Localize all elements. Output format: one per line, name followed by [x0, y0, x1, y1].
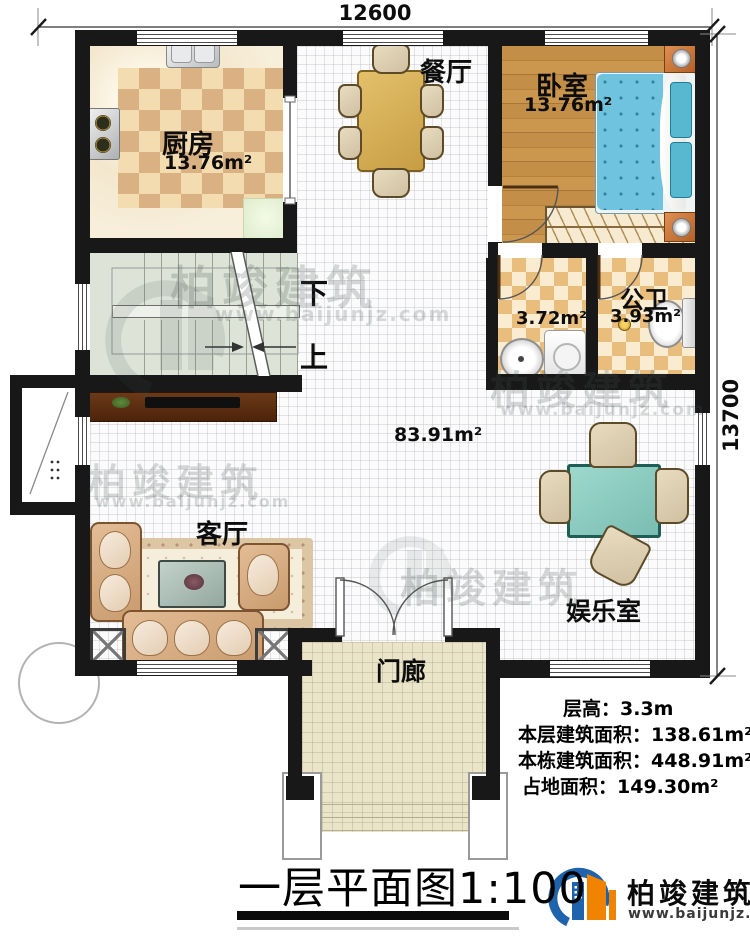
washer-drum: [553, 343, 581, 371]
nightstand-bottom: [664, 212, 698, 242]
dimension-right: 13700: [719, 352, 743, 452]
wall-porch-left: [288, 642, 302, 792]
game-chair-left: [539, 470, 571, 524]
brand-url: www.baijunjz.com: [628, 906, 750, 922]
stove: [88, 108, 120, 160]
stat-floor-height: 层高：3.3m: [563, 694, 673, 721]
window-bedroom-top: [545, 31, 648, 45]
entertainment-label: 娱乐室: [566, 592, 641, 628]
lamp-top: [672, 49, 691, 68]
living-label: 客厅: [196, 514, 248, 551]
window-entertainment-bottom: [550, 661, 650, 677]
stat-footprint-area: 占地面积：149.30m²: [522, 772, 718, 799]
wall-bath-left: [486, 258, 498, 390]
window-kitchen-top: [137, 31, 237, 45]
bay-wall-top: [10, 375, 90, 388]
game-chair-top: [589, 422, 637, 468]
kitchen-area: 13.76m²: [164, 152, 252, 174]
bedroom-door-gap: [488, 186, 502, 242]
bed-pillow-1: [670, 82, 692, 138]
porch-steps: [302, 792, 486, 832]
hall-area: 83.91m²: [394, 424, 482, 446]
wall-porch-right: [486, 642, 500, 792]
wall-porch-top-left: [288, 628, 342, 642]
stairs-up-label: 上: [300, 336, 328, 376]
dining-chair-left-2: [338, 126, 362, 160]
wall-bath-bottom: [486, 374, 710, 390]
window-bay-left: [75, 417, 90, 465]
basin-drain: [518, 356, 524, 362]
stat-building-area-label: 本栋建筑面积：: [518, 750, 651, 772]
washing-machine: [544, 330, 586, 378]
dining-chair-bottom: [372, 168, 410, 198]
stat-building-area-value: 448.91m²: [651, 750, 750, 772]
game-chair-right: [655, 468, 689, 524]
porch-label: 门廊: [376, 652, 426, 688]
window-right-mid: [695, 413, 710, 465]
sofa-bottom-cushion-3: [216, 620, 252, 656]
bath-small-area: 3.72m²: [516, 308, 587, 329]
stair-treads-upper: [128, 253, 298, 308]
dining-chair-right-1: [420, 84, 444, 118]
window-living-bottom: [137, 661, 237, 675]
stat-floor-height-value: 3.3m: [620, 698, 673, 720]
window-dining-top: [343, 31, 443, 45]
stat-floor-area: 本层建筑面积：138.61m²: [518, 720, 750, 747]
stat-building-area: 本栋建筑面积：448.91m²: [518, 746, 750, 773]
page-title: 一层平面图1:100: [238, 854, 587, 916]
bed-pillow-2: [670, 142, 692, 198]
dining-table: [357, 70, 425, 172]
sofa-bottom: [122, 610, 264, 666]
tv: [145, 397, 240, 408]
stair-treads-lower: [128, 320, 298, 375]
dining-label: 餐厅: [420, 52, 472, 89]
armchair-right: [238, 543, 290, 611]
window-stairs-left: [75, 284, 90, 350]
dimension-top: 12600: [305, 1, 445, 25]
planter-left: [90, 628, 126, 664]
stat-floor-area-label: 本层建筑面积：: [518, 724, 651, 746]
wall-right: [695, 30, 710, 678]
bath-public-area: 3.93m²: [610, 306, 681, 327]
bath-public-door-gap: [598, 243, 642, 258]
armchair-cushion: [247, 554, 279, 596]
stat-footprint-area-value: 149.30m²: [617, 776, 718, 798]
stat-footprint-area-label: 占地面积：: [522, 776, 617, 798]
wall-porch-top-right: [445, 628, 500, 642]
nightstand-top: [664, 44, 698, 73]
floor-plan: 12600 13700: [0, 0, 750, 940]
sofa-left-cushion-1: [99, 531, 131, 569]
sink-bowl-left: [171, 43, 192, 63]
stair-handrail: [112, 305, 300, 318]
wall-left-lower: [75, 505, 90, 676]
burner-top: [95, 115, 111, 131]
table-decor: [184, 574, 204, 590]
burner-bottom: [95, 137, 111, 153]
porch-pillar-left: [286, 776, 314, 800]
dining-chair-top: [372, 44, 410, 74]
porch-pillar-right: [472, 776, 500, 800]
coffee-table: [158, 560, 226, 608]
stairs-down-label: 下: [300, 272, 328, 312]
tv-plant: [112, 397, 130, 408]
sink-bowl-right: [194, 43, 215, 63]
sofa-left-cushion-2: [99, 574, 131, 612]
lamp-bottom: [672, 218, 691, 237]
bedroom-area: 13.76m²: [524, 94, 612, 116]
dining-chair-left-1: [338, 84, 362, 118]
title-underline: [237, 911, 509, 920]
sofa-bottom-cushion-1: [132, 620, 168, 656]
dining-chair-right-2: [420, 126, 444, 160]
stat-floor-area-value: 138.61m²: [651, 724, 750, 746]
wall-bath-divider: [586, 258, 598, 390]
kitchen-door-gap: [283, 98, 297, 202]
stat-floor-height-label: 层高：: [563, 698, 620, 720]
sofa-bottom-cushion-2: [174, 620, 210, 656]
bay-wall-bottom: [10, 502, 90, 515]
title-underline-gray: [237, 927, 519, 930]
wall-kitchen-bottom: [75, 238, 297, 253]
wall-stairs-bottom: [75, 375, 302, 392]
sofa-left: [90, 522, 142, 622]
bay-wall-left: [10, 375, 22, 515]
bath-small-door-gap: [498, 243, 542, 258]
